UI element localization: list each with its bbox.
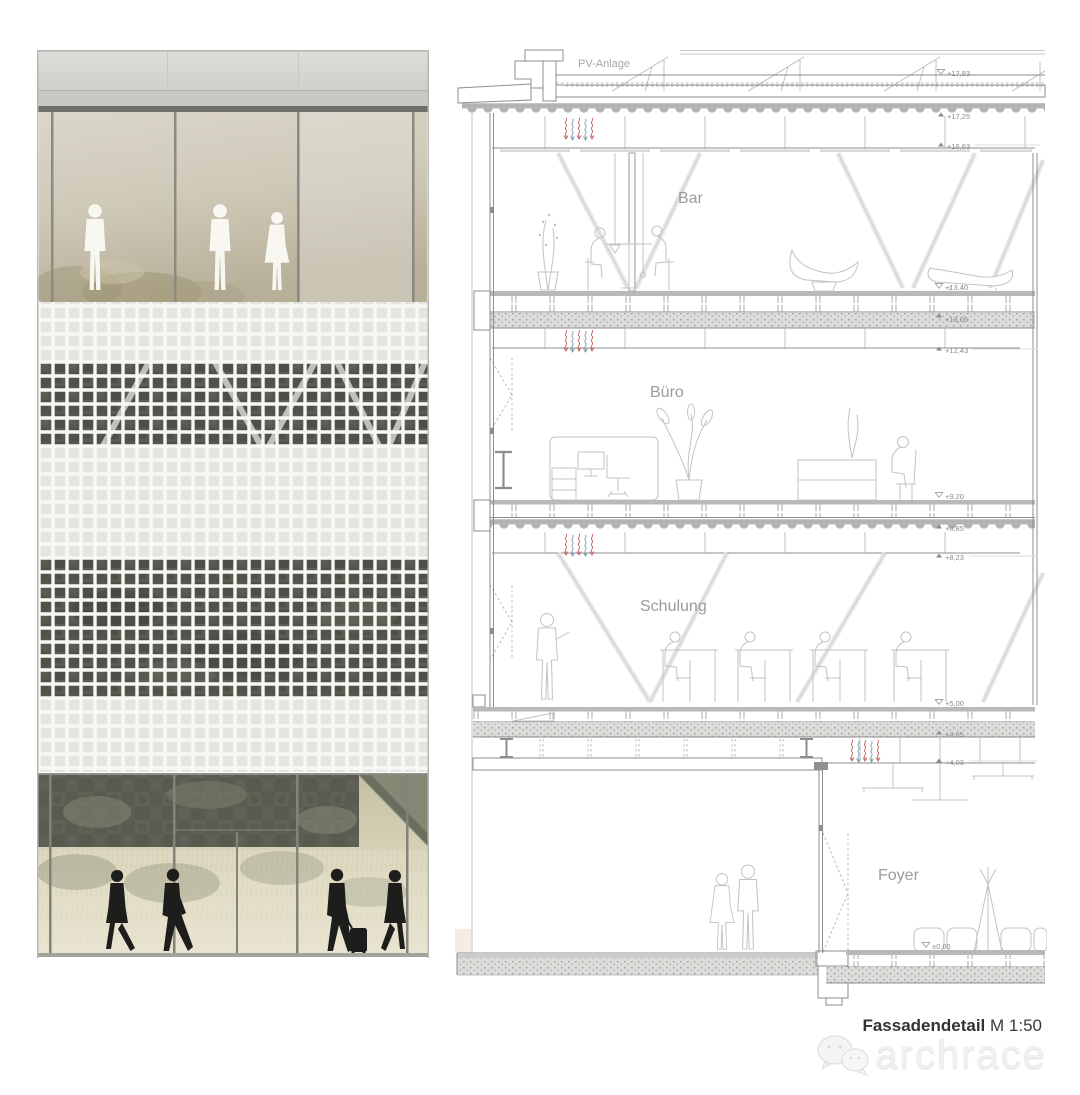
wechat-logo-icon	[813, 1031, 871, 1079]
svg-text:+8,23: +8,23	[945, 553, 964, 562]
foyer-label: Foyer	[878, 867, 920, 884]
suspended-luminaires	[862, 763, 1034, 800]
svg-text:+4,03: +4,03	[945, 758, 964, 767]
svg-text:+17,25: +17,25	[947, 112, 970, 121]
svg-text:+17,83: +17,83	[947, 69, 970, 78]
presenter-figure	[537, 614, 570, 700]
foyer-level: Foyer	[455, 737, 1047, 1005]
svg-text:+12,43: +12,43	[945, 346, 968, 355]
diagonal-braces	[558, 553, 1043, 702]
facade-elevation-panel	[37, 50, 429, 958]
facade-upper-glazing	[37, 112, 427, 312]
ventilation-arrows	[564, 330, 594, 352]
sheet: PV-Anlage	[0, 0, 1080, 1095]
facade-section-drawing: PV-Anlage	[455, 38, 1047, 1015]
buero-label: Büro	[650, 384, 684, 401]
svg-text:+5,00: +5,00	[945, 699, 964, 708]
svg-text:+8,85: +8,85	[945, 524, 964, 533]
ventilation-arrows	[564, 118, 594, 140]
svg-text:+9,20: +9,20	[945, 492, 964, 501]
roof-assembly: PV-Anlage	[458, 50, 1045, 152]
watermark: archrace	[813, 1031, 1047, 1079]
foyer-furniture	[914, 867, 1047, 952]
schulung-label: Schulung	[640, 598, 707, 615]
svg-text:+13,40: +13,40	[945, 283, 968, 292]
watermark-text: archrace	[875, 1033, 1047, 1078]
perforated-screen	[37, 302, 429, 772]
facade-parapet	[37, 50, 429, 112]
ventilation-arrows	[850, 740, 880, 762]
svg-text:+16,63: +16,63	[947, 142, 970, 151]
svg-text:+13,06: +13,06	[945, 315, 968, 324]
svg-text:+4,65: +4,65	[945, 730, 964, 739]
schulung-floor: Schulung	[473, 553, 1043, 737]
buero-furniture	[550, 404, 916, 500]
svg-text:±0,00: ±0,00	[932, 942, 951, 951]
soffit-hangers	[540, 739, 783, 757]
foyer-couple	[710, 865, 758, 949]
pv-label: PV-Anlage	[578, 58, 630, 70]
facade-lower-glazing	[37, 773, 429, 957]
soffit-beams	[500, 739, 813, 757]
bar-label: Bar	[678, 190, 704, 207]
steel-column	[495, 452, 512, 488]
